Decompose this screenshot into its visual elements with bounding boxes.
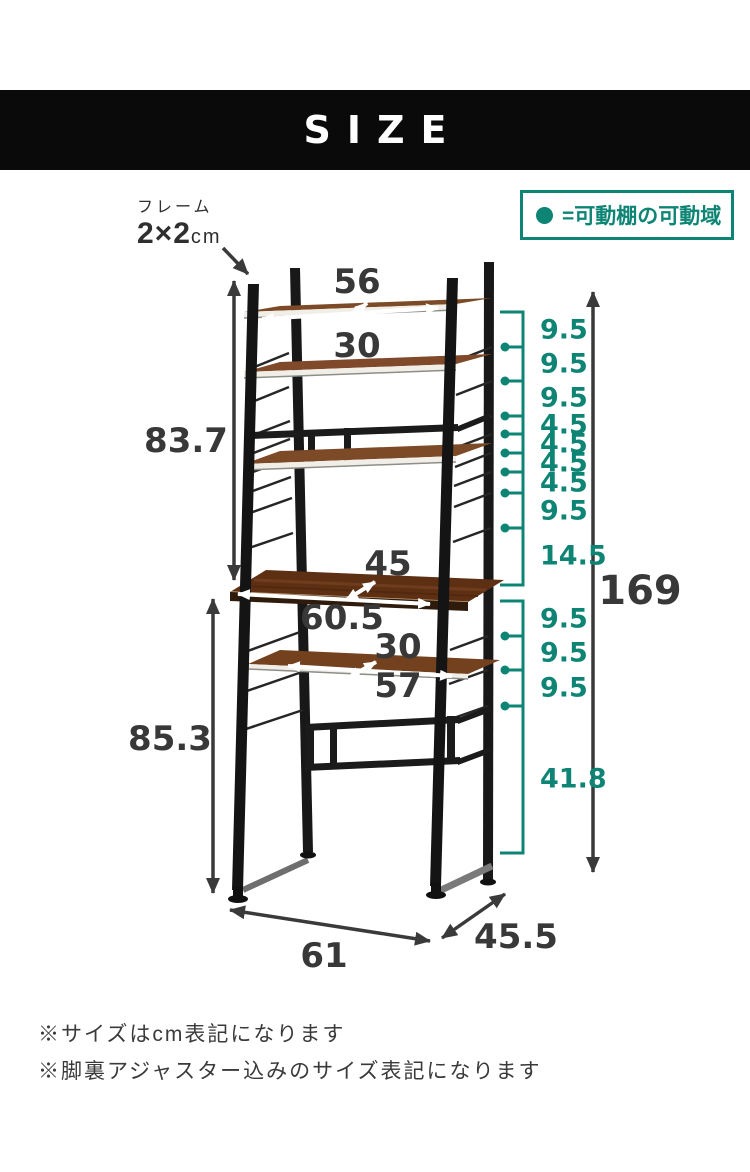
bottom-rail-left: [243, 860, 308, 890]
dim-desk-depth: 45: [364, 544, 411, 584]
movable-upper-7: 4.5: [540, 468, 588, 499]
movable-range-bracket-upper: [500, 312, 523, 585]
movable-range-dots-upper: [501, 343, 510, 533]
movable-range-dots-lower: [501, 632, 510, 711]
dim-top-shelf-width: 56: [333, 262, 380, 302]
dim-lower-section-height: 85.3: [128, 719, 212, 759]
arrow-frame-pointer: [223, 248, 248, 274]
movable-upper-8: 9.5: [540, 496, 588, 527]
dim-slide-shelf-width: 57: [374, 666, 421, 706]
side-rungs-left-lower: [243, 632, 303, 730]
dim-total-height: 169: [598, 568, 682, 614]
dim-upper-section-height: 83.7: [144, 421, 228, 461]
movable-upper-9: 14.5: [540, 541, 607, 572]
footnote-1: ※サイズはcm表記になります: [38, 1016, 541, 1053]
footnotes: ※サイズはcm表記になります ※脚裏アジャスター込みのサイズ表記になります: [38, 1016, 541, 1090]
movable-upper-1: 9.5: [540, 315, 588, 346]
movable-upper-2: 9.5: [540, 349, 588, 380]
dim-desk-width: 60.5: [300, 598, 384, 638]
size-diagram-page: SIZE =可動棚の可動域 フレーム 2×2cm: [0, 0, 750, 1172]
dim-base-width: 61: [300, 936, 347, 976]
dim-slide-shelf-depth: 30: [374, 627, 421, 667]
dim-top-shelf-depth: 30: [333, 326, 380, 366]
movable-lower-3: 9.5: [540, 673, 588, 704]
movable-lower-4: 41.8: [540, 764, 607, 795]
dim-base-depth: 45.5: [474, 917, 558, 957]
movable-lower-2: 9.5: [540, 638, 588, 669]
footnote-2: ※脚裏アジャスター込みのサイズ表記になります: [38, 1053, 541, 1090]
movable-lower-1: 9.5: [540, 604, 588, 635]
